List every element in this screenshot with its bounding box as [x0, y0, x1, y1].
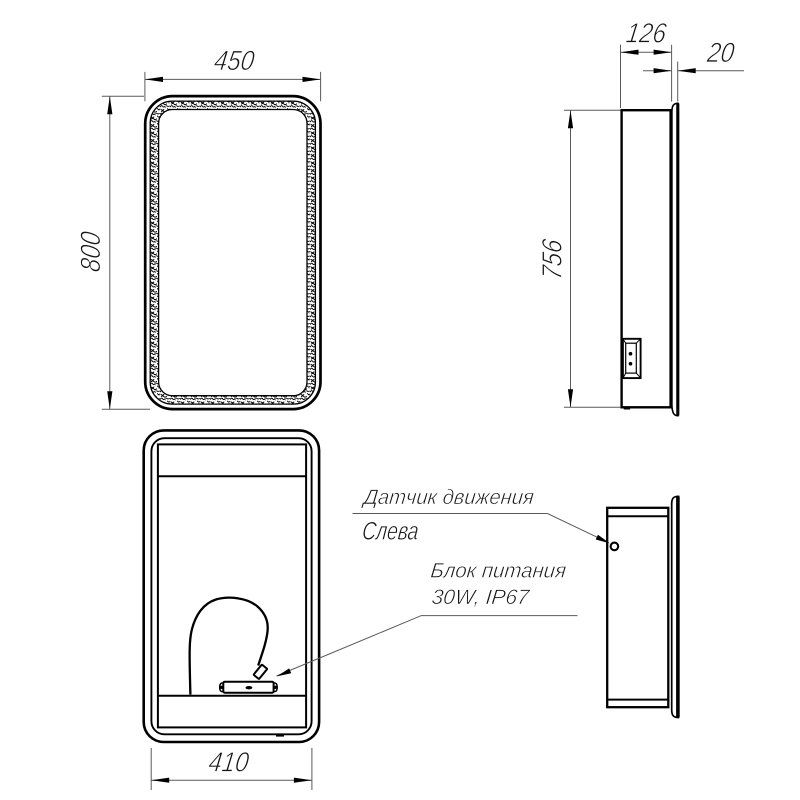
svg-text:800: 800 — [75, 229, 106, 273]
svg-text:Блок питания: Блок питания — [429, 560, 567, 583]
svg-text:756: 756 — [536, 237, 567, 281]
svg-text:450: 450 — [212, 45, 256, 76]
svg-text:410: 410 — [207, 747, 251, 778]
svg-text:126: 126 — [624, 18, 668, 49]
svg-text:Слева: Слева — [361, 517, 420, 545]
svg-text:20: 20 — [705, 37, 737, 68]
svg-text:30W, IP67: 30W, IP67 — [430, 586, 531, 609]
svg-text:Датчик движения: Датчик движения — [361, 486, 535, 509]
